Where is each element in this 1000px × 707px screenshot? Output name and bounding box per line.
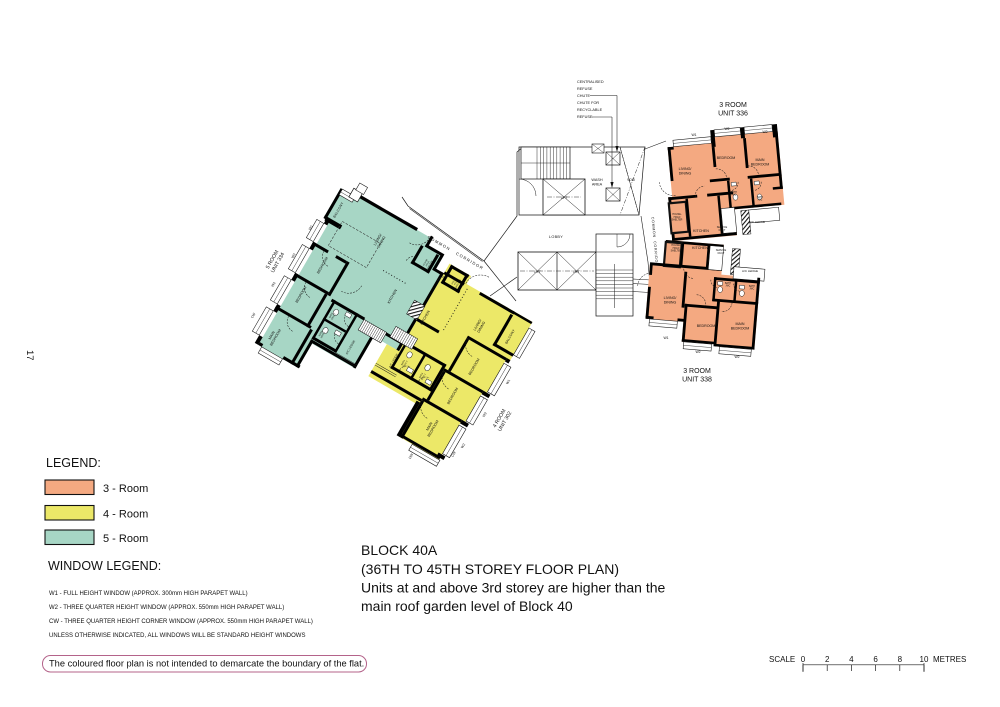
svg-text:UNIT 336: UNIT 336	[718, 110, 748, 117]
svg-text:/WC: /WC	[758, 200, 763, 202]
svg-text:LIVING/: LIVING/	[664, 296, 677, 300]
svg-text:4 - Room: 4 - Room	[103, 509, 148, 521]
svg-text:WASH: WASH	[591, 178, 603, 182]
svg-text:W2: W2	[734, 355, 739, 359]
svg-text:/WC: /WC	[726, 286, 731, 288]
svg-text:LIFT: LIFT	[561, 196, 568, 200]
svg-text:SHELTER: SHELTER	[671, 250, 682, 253]
svg-text:Units at and above 3rd storey: Units at and above 3rd storey are higher…	[361, 580, 666, 596]
svg-text:A/C LEDGE: A/C LEDGE	[742, 269, 758, 273]
svg-text:3 - Room: 3 - Room	[103, 483, 148, 495]
svg-text:The coloured floor plan is not: The coloured floor plan is not intended …	[49, 659, 364, 669]
svg-text:0: 0	[801, 655, 806, 664]
svg-text:/WC: /WC	[750, 289, 755, 291]
svg-text:MAIN: MAIN	[756, 158, 765, 162]
svg-text:MAIN: MAIN	[736, 322, 745, 326]
svg-text:LIFT: LIFT	[534, 270, 541, 274]
svg-text:LOBBY: LOBBY	[549, 235, 563, 239]
svg-text:BEDROOM: BEDROOM	[717, 156, 736, 160]
svg-text:BEDROOM: BEDROOM	[697, 324, 716, 328]
svg-text:4: 4	[849, 655, 854, 664]
svg-text:CHUTE: CHUTE	[577, 94, 591, 98]
svg-text:W2: W2	[695, 350, 700, 354]
svg-text:BATH: BATH	[731, 191, 737, 194]
svg-text:SCALE: SCALE	[769, 655, 795, 664]
svg-text:BEDROOM: BEDROOM	[731, 326, 750, 330]
svg-text:A/C LEDGE: A/C LEDGE	[749, 220, 765, 224]
svg-text:LEGEND:: LEGEND:	[46, 456, 101, 470]
svg-text:LIFT: LIFT	[573, 270, 580, 274]
svg-text:WINDOW LEGEND:: WINDOW LEGEND:	[48, 559, 161, 573]
svg-text:2: 2	[825, 655, 830, 664]
svg-text:6: 6	[873, 655, 878, 664]
svg-text:/WC: /WC	[732, 195, 737, 197]
svg-text:3 ROOM: 3 ROOM	[683, 368, 711, 375]
svg-text:BATH: BATH	[757, 196, 763, 199]
svg-text:W2: W2	[762, 130, 767, 134]
svg-text:REFUSE: REFUSE	[577, 115, 593, 119]
svg-text:DUCT: DUCT	[719, 229, 726, 232]
svg-text:BLOCK 40A: BLOCK 40A	[361, 542, 438, 558]
svg-text:CHUTE FOR: CHUTE FOR	[577, 101, 599, 105]
svg-text:W1 - FULL HEIGHT WINDOW (APPRO: W1 - FULL HEIGHT WINDOW (APPROX. 300mm H…	[49, 591, 248, 597]
svg-text:W1: W1	[663, 336, 668, 340]
svg-text:KITCHEN: KITCHEN	[693, 229, 709, 233]
svg-text:CENTRALISED: CENTRALISED	[577, 80, 604, 84]
svg-text:W2 - THREE QUARTER HEIGHT WIND: W2 - THREE QUARTER HEIGHT WINDOW (APPROX…	[49, 605, 284, 611]
svg-text:VOID: VOID	[627, 178, 635, 182]
svg-text:5 - Room: 5 - Room	[103, 533, 148, 545]
svg-text:METRES: METRES	[933, 655, 966, 664]
svg-text:KITCHEN: KITCHEN	[692, 246, 708, 250]
svg-text:UNLESS OTHERWISE INDICATED, AL: UNLESS OTHERWISE INDICATED, ALL WINDOWS …	[49, 633, 305, 639]
svg-text:DINING: DINING	[664, 300, 677, 304]
svg-text:UNIT 338: UNIT 338	[682, 376, 712, 383]
svg-text:DINING: DINING	[679, 171, 692, 175]
svg-text:LIVING/: LIVING/	[679, 167, 692, 171]
svg-text:main roof garden level of Bloc: main roof garden level of Block 40	[361, 598, 573, 614]
svg-text:RECYCLABLE: RECYCLABLE	[577, 108, 603, 112]
svg-text:BEDROOM: BEDROOM	[751, 162, 770, 166]
svg-text:REFUSE: REFUSE	[577, 87, 593, 91]
svg-text:CW - THREE QUARTER HEIGHT CORN: CW - THREE QUARTER HEIGHT CORNER WINDOW …	[49, 619, 313, 625]
svg-text:BATH: BATH	[725, 282, 731, 285]
svg-text:(36TH TO 45TH STOREY FLOOR PLA: (36TH TO 45TH STOREY FLOOR PLAN)	[361, 561, 619, 577]
svg-text:10: 10	[920, 655, 929, 664]
svg-text:W1: W1	[691, 133, 696, 137]
svg-text:BATH: BATH	[749, 285, 755, 288]
svg-text:17: 17	[24, 350, 35, 361]
svg-text:DUCT: DUCT	[718, 252, 725, 255]
svg-text:8: 8	[898, 655, 903, 664]
svg-text:AREA: AREA	[592, 183, 603, 187]
svg-text:3 ROOM: 3 ROOM	[719, 102, 747, 109]
svg-text:W2: W2	[724, 127, 729, 131]
svg-text:SHELTER: SHELTER	[672, 219, 683, 222]
